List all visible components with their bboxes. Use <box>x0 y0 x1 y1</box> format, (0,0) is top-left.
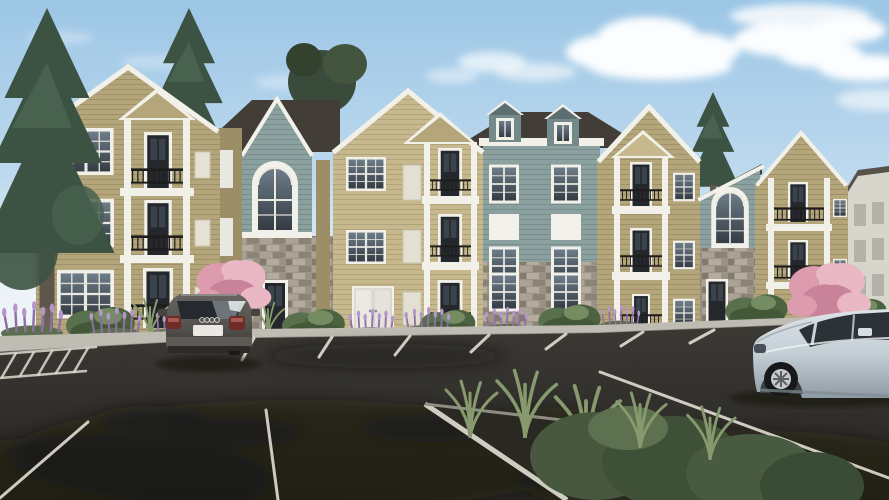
utility-panel <box>403 165 421 200</box>
dark-suv <box>157 294 261 372</box>
tail-light <box>754 344 766 353</box>
small-window <box>220 218 233 256</box>
window <box>346 230 386 264</box>
pine-lower-foliage <box>52 185 104 245</box>
spandrel-panel <box>489 214 519 240</box>
balcony-door <box>438 214 462 262</box>
sill-band <box>240 232 312 238</box>
architectural-rendering: Apartment complex exterior rendering Arc… <box>0 0 889 500</box>
window <box>551 165 581 204</box>
small-window <box>220 150 233 188</box>
portico-column <box>424 142 430 334</box>
side-mirror-left <box>158 309 167 316</box>
spandrel-panel <box>551 214 581 240</box>
window-stack-left <box>489 165 519 312</box>
tail-light-glow <box>168 318 179 322</box>
wheel-spokes <box>773 371 789 387</box>
arched-window <box>252 161 298 236</box>
portico-column <box>124 118 131 336</box>
balcony-slab <box>120 255 194 263</box>
balcony-slab <box>612 206 670 214</box>
window-stack-right <box>551 165 581 312</box>
utility-panel <box>403 292 421 325</box>
rendering-canvas: Apartment complex exterior rendering Arc… <box>0 0 889 500</box>
window <box>346 157 386 191</box>
side-mirror <box>858 328 872 336</box>
shutter-panel <box>195 152 210 178</box>
rear-bumper <box>166 337 252 346</box>
entry-door <box>706 279 728 323</box>
arched-window <box>711 187 749 248</box>
car-shadow <box>157 356 261 372</box>
recessed-wall <box>316 160 330 332</box>
window <box>673 173 695 202</box>
balcony-slab <box>422 196 479 204</box>
tail-light-glow <box>231 318 243 322</box>
shutter-panel <box>195 220 210 246</box>
portico-column <box>471 142 477 334</box>
portico-column <box>614 158 620 330</box>
balcony-slab <box>120 188 194 196</box>
license-plate <box>193 325 223 336</box>
side-mirror-right <box>251 309 260 316</box>
window <box>489 273 519 312</box>
balcony-slab <box>612 272 670 280</box>
window <box>673 241 695 270</box>
window <box>489 165 519 204</box>
balcony-slab <box>422 262 479 270</box>
window <box>833 199 847 217</box>
utility-panel <box>403 230 421 263</box>
exhaust <box>229 351 240 355</box>
portico-column <box>662 158 668 330</box>
balcony-slab <box>766 224 832 231</box>
tail-light-left <box>166 316 181 329</box>
balcony-door <box>438 148 462 196</box>
